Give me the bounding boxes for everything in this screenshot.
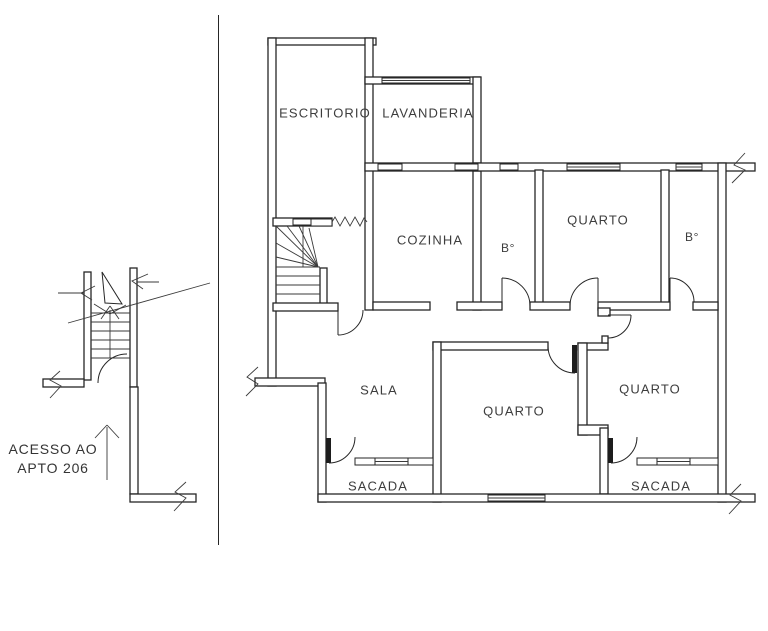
access-annotation: ACESSO AO APTO 206 (9, 440, 98, 478)
access-arrow (95, 425, 119, 480)
quarto-center-door-arc (548, 346, 575, 373)
stair-treads (91, 313, 130, 358)
room-label-sala: SALA (360, 383, 398, 398)
access-annotation-line1: ACESSO AO (9, 440, 98, 459)
room-label-quarto-center: QUARTO (483, 404, 545, 419)
room-label-quarto-right: QUARTO (619, 382, 681, 397)
bath-left-door-arc (502, 278, 530, 306)
bath-right-door-arc (670, 278, 694, 302)
room-label-banheiro-right: B° (685, 230, 699, 244)
floor-plan-page: ESCRITORIO LAVANDERIA COZINHA QUARTO B° … (0, 0, 768, 631)
zigzag-break (332, 217, 367, 226)
room-label-banheiro-left: B° (501, 241, 515, 255)
floor-plan-drawing (0, 0, 768, 631)
quarto-top-door-arc (570, 278, 598, 306)
room-label-lavanderia: LAVANDERIA (382, 106, 473, 121)
room-label-sacada-right: SACADA (631, 479, 691, 494)
quarto-right-door-arc (608, 315, 631, 338)
access-annotation-line2: APTO 206 (9, 459, 98, 478)
windows (293, 78, 702, 501)
right-balcony-door-arc (611, 437, 637, 463)
room-label-cozinha: COZINHA (397, 233, 463, 248)
interior-stair (276, 226, 320, 294)
room-label-escritorio: ESCRITORIO (279, 106, 371, 121)
stair-cut-triangle (102, 272, 122, 304)
room-label-quarto-top: QUARTO (567, 213, 629, 228)
sala-balcony-door-arc (329, 437, 355, 463)
hall-door-arc (338, 310, 363, 335)
room-label-sacada-left: SACADA (348, 479, 408, 494)
